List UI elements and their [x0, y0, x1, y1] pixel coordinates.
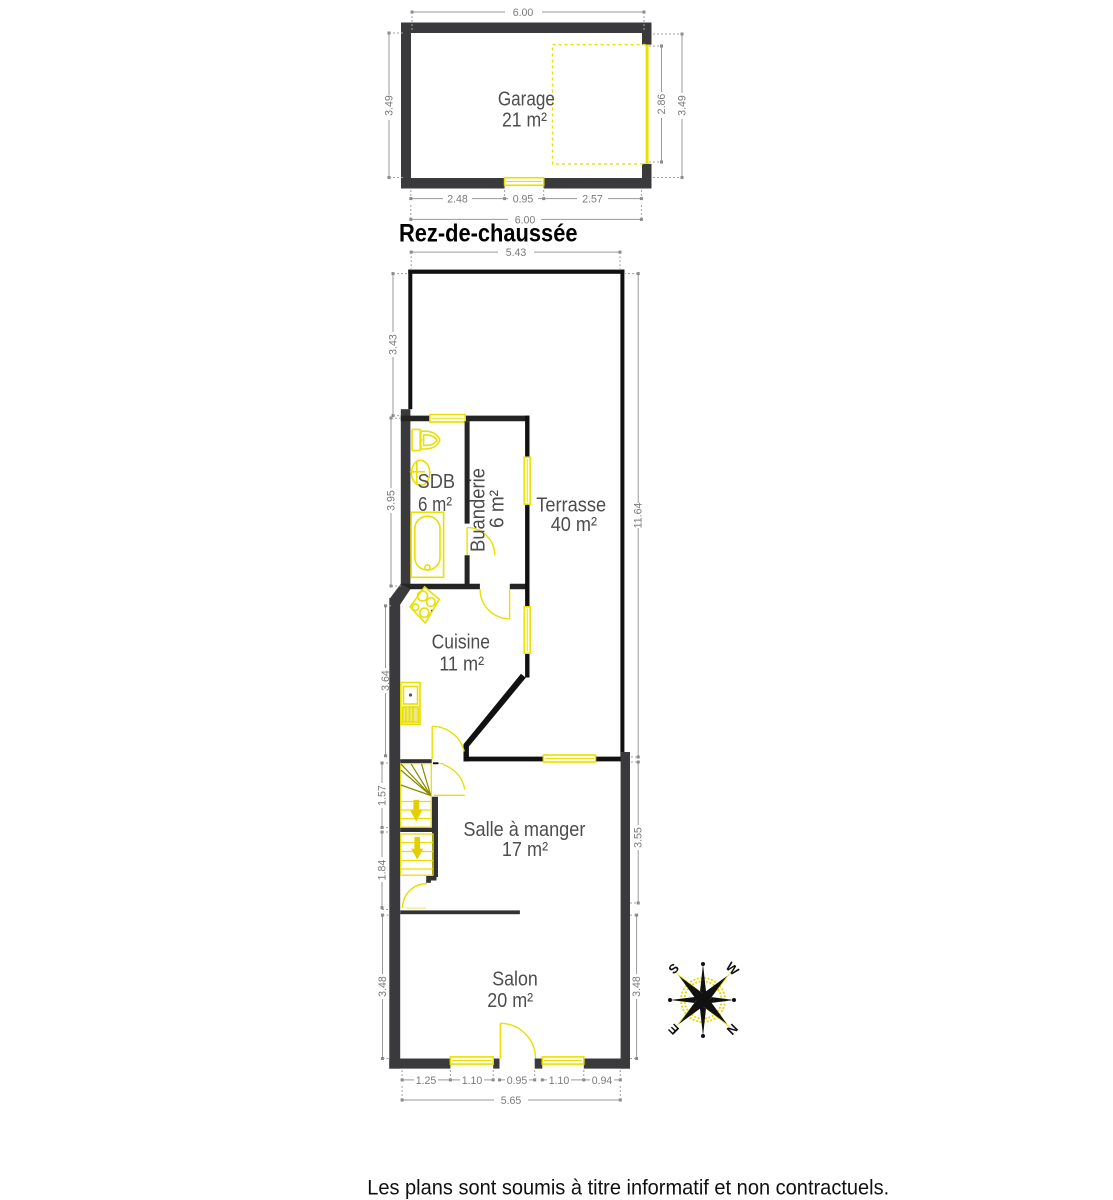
svg-text:3.48: 3.48: [377, 976, 389, 997]
svg-text:3.64: 3.64: [380, 670, 392, 691]
svg-text:11 m²: 11 m²: [439, 653, 484, 676]
svg-text:Cuisine: Cuisine: [432, 630, 490, 653]
svg-text:17 m²: 17 m²: [502, 838, 548, 861]
svg-text:2.57: 2.57: [582, 194, 603, 206]
svg-text:1.10: 1.10: [462, 1075, 483, 1087]
svg-text:6 m²: 6 m²: [486, 490, 509, 528]
svg-text:11.64: 11.64: [633, 503, 645, 529]
svg-text:3.48: 3.48: [631, 976, 643, 997]
svg-text:6 m²: 6 m²: [418, 493, 452, 516]
svg-text:Garage: Garage: [498, 88, 555, 111]
svg-text:5.65: 5.65: [501, 1095, 522, 1107]
svg-text:1.57: 1.57: [377, 785, 389, 806]
svg-text:2.86: 2.86: [656, 94, 668, 115]
svg-text:SDB: SDB: [418, 470, 456, 493]
svg-text:20 m²: 20 m²: [487, 989, 533, 1012]
svg-text:3.49: 3.49: [677, 95, 689, 116]
svg-text:2.48: 2.48: [447, 194, 468, 206]
svg-text:3.95: 3.95: [386, 490, 398, 511]
svg-text:Les plans sont soumis à titre: Les plans sont soumis à titre informatif…: [367, 1177, 889, 1200]
svg-text:1.10: 1.10: [549, 1075, 570, 1087]
svg-text:3.43: 3.43: [388, 334, 400, 355]
svg-text:6.00: 6.00: [513, 7, 534, 19]
svg-text:40 m²: 40 m²: [551, 513, 598, 536]
svg-text:Salon: Salon: [492, 968, 538, 991]
svg-text:3.55: 3.55: [633, 827, 645, 848]
svg-text:0.94: 0.94: [592, 1075, 613, 1087]
svg-text:Rez-de-chaussée: Rez-de-chaussée: [399, 220, 578, 248]
svg-text:3.49: 3.49: [384, 95, 396, 116]
svg-text:1.84: 1.84: [377, 860, 389, 881]
svg-text:0.95: 0.95: [513, 194, 534, 206]
svg-text:21 m²: 21 m²: [502, 109, 547, 132]
svg-text:0.95: 0.95: [507, 1075, 528, 1087]
svg-text:5.43: 5.43: [506, 247, 527, 259]
svg-text:1.25: 1.25: [416, 1075, 437, 1087]
